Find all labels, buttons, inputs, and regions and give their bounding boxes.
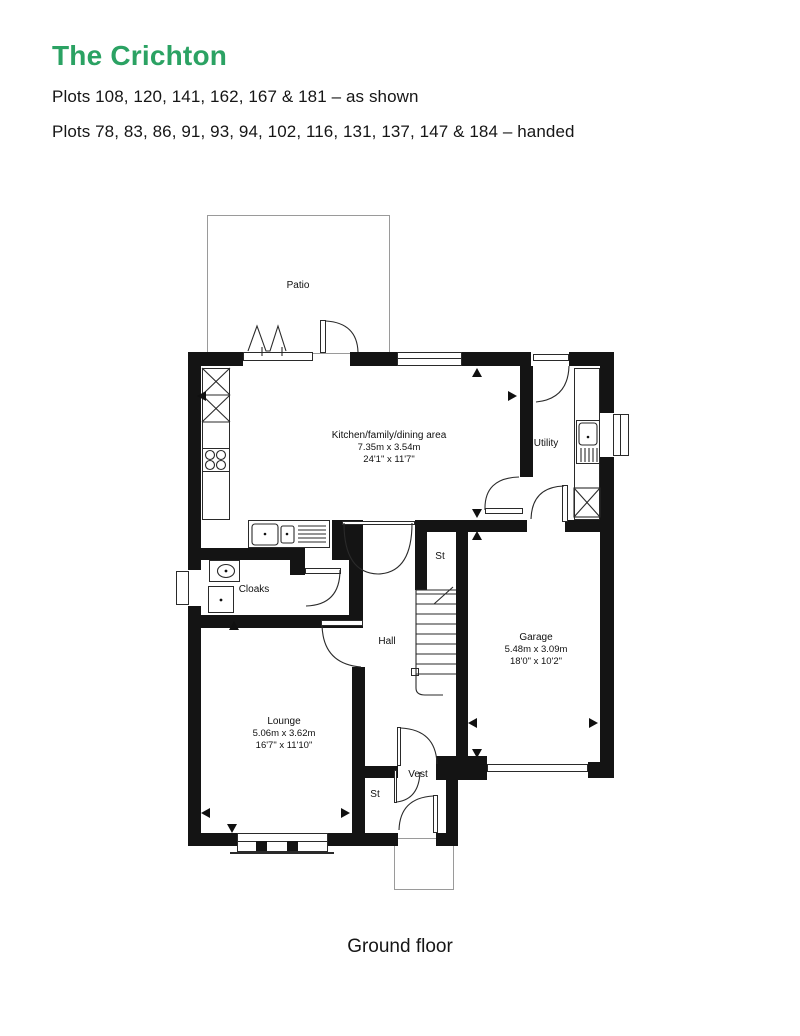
wall-garage-left bbox=[456, 520, 468, 762]
bay-mullion bbox=[287, 841, 298, 851]
room-label-utility: Utility bbox=[534, 438, 558, 451]
room-label-hall: Hall bbox=[378, 636, 395, 649]
room-dim-lounge-imperial: 16'7" x 11'10" bbox=[256, 740, 313, 752]
kitchen-counter-left bbox=[202, 368, 230, 520]
double-door-head-line bbox=[342, 521, 415, 525]
wall bbox=[332, 520, 363, 560]
lounge-door-leaf-icon bbox=[321, 620, 363, 626]
room-dim-kitchen-metric: 7.35m x 3.54m bbox=[358, 442, 421, 454]
room-label-vest: Vest bbox=[408, 769, 427, 782]
wall bbox=[461, 352, 531, 366]
room-dim-garage-imperial: 18'0" x 10'2" bbox=[510, 656, 562, 668]
wall bbox=[349, 560, 363, 617]
room-label-kitchen: Kitchen/family/dining area bbox=[332, 430, 447, 443]
wall-st-top bbox=[352, 766, 398, 778]
utility-rear-door-leaf-icon bbox=[533, 354, 569, 361]
room-dim-garage-metric: 5.48m x 3.09m bbox=[505, 644, 568, 656]
cloaks-door-leaf-icon bbox=[305, 568, 341, 574]
bay-mullion bbox=[256, 841, 267, 851]
room-label-st-upper: St bbox=[435, 551, 444, 564]
wall bbox=[600, 457, 614, 778]
wall-lounge-hall bbox=[352, 667, 365, 846]
front-door-leaf-icon bbox=[433, 795, 438, 833]
utility-sink-icon bbox=[576, 420, 600, 464]
utility-garage-door-leaf-icon bbox=[562, 485, 568, 522]
cloaks-window-icon bbox=[176, 571, 189, 605]
st-door-leaf-icon bbox=[394, 770, 397, 803]
plots-as-shown: Plots 108, 120, 141, 162, 167 & 181 – as… bbox=[52, 87, 419, 107]
bay-window-line bbox=[237, 841, 328, 842]
wall bbox=[350, 352, 397, 366]
kitchen-window-line bbox=[397, 358, 462, 359]
wall bbox=[290, 548, 305, 575]
bay-sill-line bbox=[230, 852, 334, 854]
hob-icon bbox=[202, 448, 230, 472]
patio-door-leaf-icon bbox=[320, 320, 326, 353]
utility-window-line bbox=[620, 414, 621, 456]
basin-icon bbox=[208, 586, 234, 613]
wall-cloaks-top bbox=[201, 548, 290, 560]
kitchen-window-icon bbox=[397, 352, 462, 366]
vest-door-leaf-icon bbox=[397, 727, 401, 766]
patio-door-track-icon bbox=[243, 352, 313, 361]
wall bbox=[188, 352, 201, 570]
wall bbox=[565, 520, 600, 532]
wall bbox=[415, 520, 527, 532]
stairs-icon bbox=[416, 587, 456, 695]
wall bbox=[188, 606, 201, 846]
toilet-icon bbox=[209, 560, 240, 582]
wall-stair-cupboard bbox=[415, 520, 427, 590]
stair-newel-post bbox=[411, 668, 419, 676]
wall bbox=[600, 352, 614, 413]
wall bbox=[588, 762, 614, 778]
room-dim-lounge-metric: 5.06m x 3.62m bbox=[253, 728, 316, 740]
room-label-patio: Patio bbox=[287, 280, 310, 293]
kitchen-sink-unit bbox=[248, 520, 330, 548]
room-label-cloaks: Cloaks bbox=[239, 584, 270, 597]
floorplan-page: The Crichton Plots 108, 120, 141, 162, 1… bbox=[0, 0, 800, 1036]
page-title: The Crichton bbox=[52, 40, 227, 72]
garage-door-icon bbox=[487, 764, 588, 772]
wall-kitchen-utility bbox=[520, 366, 533, 477]
room-label-st-lower: St bbox=[370, 789, 379, 802]
dining-utility-door-leaf-icon bbox=[485, 508, 523, 514]
room-dim-kitchen-imperial: 24'1" x 11'7" bbox=[363, 454, 414, 466]
room-label-garage: Garage bbox=[519, 632, 552, 645]
room-label-lounge: Lounge bbox=[267, 716, 300, 729]
floor-label: Ground floor bbox=[347, 936, 453, 958]
plots-handed: Plots 78, 83, 86, 91, 93, 94, 102, 116, … bbox=[52, 122, 575, 142]
bay-window-icon bbox=[237, 833, 328, 852]
utility-window-icon bbox=[613, 414, 629, 456]
wall bbox=[188, 833, 237, 846]
wall-vest-right bbox=[446, 778, 458, 846]
